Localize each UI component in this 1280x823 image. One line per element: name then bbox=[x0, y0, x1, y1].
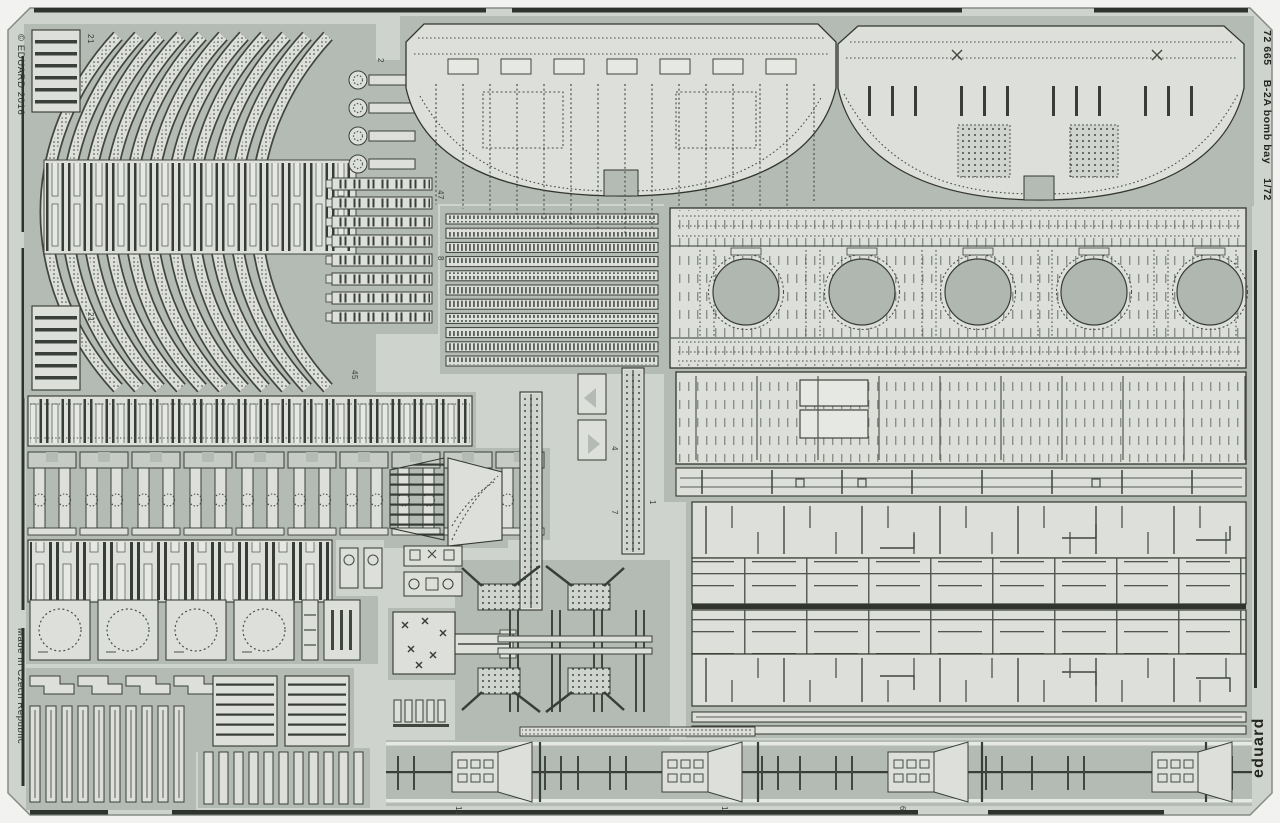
wedge-striped-part bbox=[390, 458, 444, 540]
rib-arc-band bbox=[44, 160, 356, 254]
pe-fret-sheet-image: © EDUARD 2016 Made in Czech Republic 72 … bbox=[0, 0, 1280, 823]
part-number-7: 7 bbox=[610, 510, 619, 515]
tread-strip-block bbox=[446, 214, 658, 366]
door-hinge-band-lower bbox=[692, 610, 1246, 654]
ladder-part-bottom-left bbox=[32, 306, 80, 390]
part-number-4: 4 bbox=[610, 446, 619, 451]
sill-rail bbox=[676, 468, 1246, 496]
door-panel-lower bbox=[692, 654, 1246, 706]
access-panel-extras bbox=[302, 600, 360, 660]
rib-strip-row bbox=[28, 396, 472, 446]
copyright-label: © EDUARD 2016 bbox=[15, 34, 26, 115]
made-in-label: Made in Czech Republic bbox=[15, 628, 26, 744]
dotted-strip-b bbox=[622, 368, 644, 554]
link-strip bbox=[520, 727, 755, 736]
brand-logo: eduard bbox=[1250, 717, 1267, 778]
pe-fret-photo: © EDUARD 2016 Made in Czech Republic 72 … bbox=[0, 0, 1280, 823]
part-number-11a: 11 bbox=[454, 806, 463, 815]
door-centre-join bbox=[692, 604, 1246, 609]
product-code: 72 665 bbox=[1261, 30, 1273, 66]
door-hinge-band-upper bbox=[692, 558, 1246, 604]
part-number-11b: 11 bbox=[720, 806, 729, 815]
part-number-6: 6 bbox=[898, 806, 907, 811]
slot-strip-row bbox=[28, 540, 382, 602]
part-number-45: 45 bbox=[350, 370, 359, 380]
part-number-21a: 21 bbox=[86, 34, 95, 44]
part-number-1: 1 bbox=[648, 500, 657, 505]
part-number-8: 8 bbox=[436, 256, 445, 261]
door-panel-upper bbox=[692, 502, 1246, 558]
ladder-part-top-left bbox=[32, 30, 80, 112]
keel-panel bbox=[676, 372, 1246, 464]
product-title: B-2A bomb bay bbox=[1261, 80, 1273, 164]
product-scale: 1/72 bbox=[1261, 178, 1273, 201]
part-number-47: 47 bbox=[436, 190, 445, 200]
part-number-2: 2 bbox=[376, 58, 385, 63]
fan-part bbox=[448, 458, 502, 546]
part-number-21b: 21 bbox=[86, 312, 95, 322]
strip-comb-right bbox=[204, 752, 363, 804]
